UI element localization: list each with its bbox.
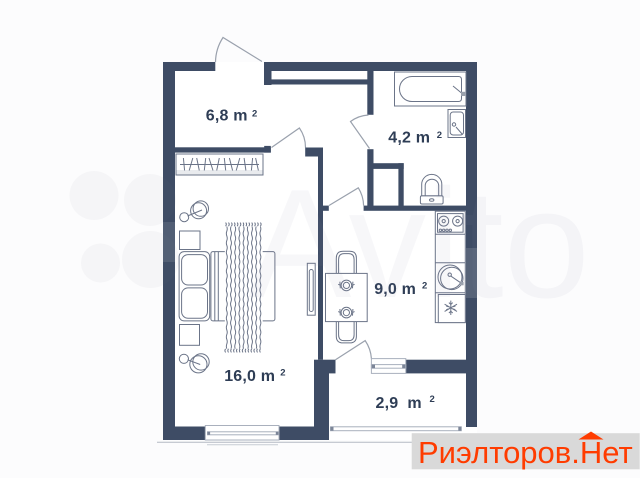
svg-text:6,8 m: 6,8 m — [206, 108, 248, 125]
svg-text:2: 2 — [437, 130, 442, 141]
svg-text:4,2 m: 4,2 m — [388, 130, 430, 147]
svg-text:2: 2 — [280, 368, 285, 379]
svg-text:Avito: Avito — [248, 157, 590, 330]
svg-text:2: 2 — [252, 108, 257, 119]
svg-text:Риэлторов.Нет: Риэлторов.Нет — [418, 435, 633, 470]
svg-text:16,0 m: 16,0 m — [224, 368, 275, 385]
svg-text:2: 2 — [430, 394, 435, 405]
